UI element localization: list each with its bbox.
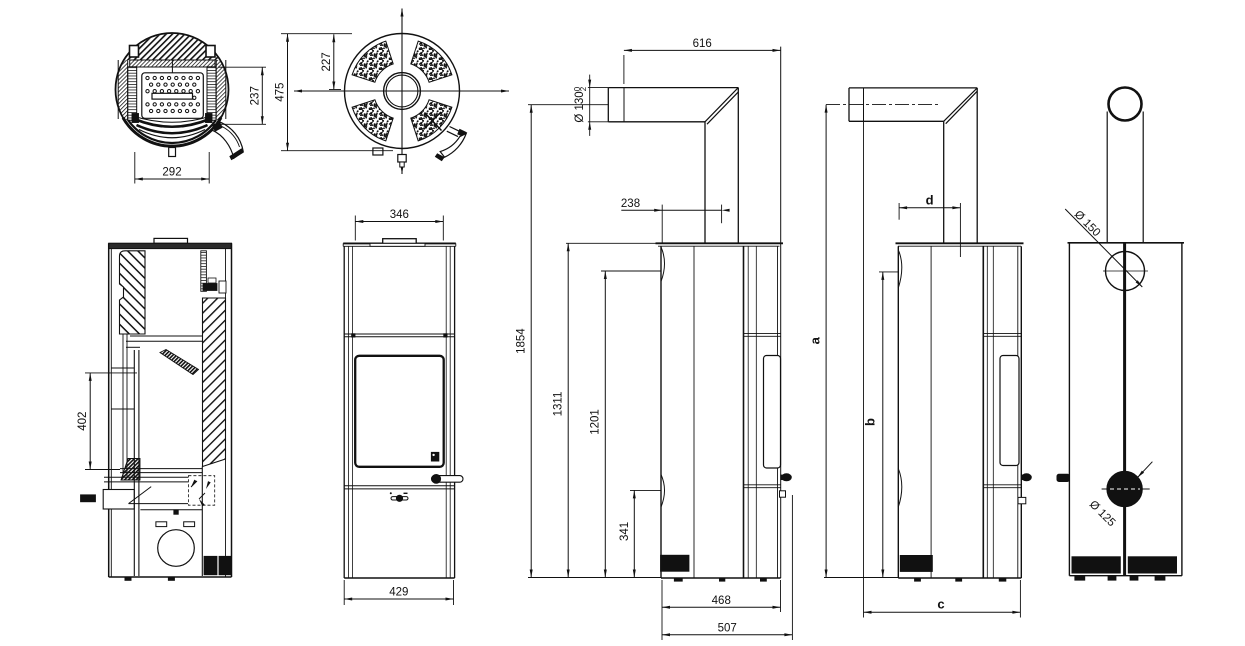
svg-text:292: 292 xyxy=(162,167,181,179)
svg-text:1854: 1854 xyxy=(516,328,528,354)
svg-text:a: a xyxy=(808,336,823,344)
svg-text:c: c xyxy=(937,596,944,611)
svg-text:1201: 1201 xyxy=(590,409,602,435)
svg-text:1311: 1311 xyxy=(553,392,565,417)
svg-text:b: b xyxy=(862,418,877,426)
svg-text:402: 402 xyxy=(77,412,89,431)
svg-text:429: 429 xyxy=(389,587,408,599)
svg-text:616: 616 xyxy=(693,38,712,50)
svg-text:475: 475 xyxy=(275,83,287,102)
svg-text:507: 507 xyxy=(718,622,737,634)
svg-text:d: d xyxy=(926,192,934,207)
svg-text:227: 227 xyxy=(321,52,333,71)
svg-text:346: 346 xyxy=(390,209,409,221)
svg-text:468: 468 xyxy=(712,595,731,607)
svg-text:238: 238 xyxy=(621,198,640,210)
svg-text:237: 237 xyxy=(249,86,261,105)
svg-text:341: 341 xyxy=(619,522,631,541)
